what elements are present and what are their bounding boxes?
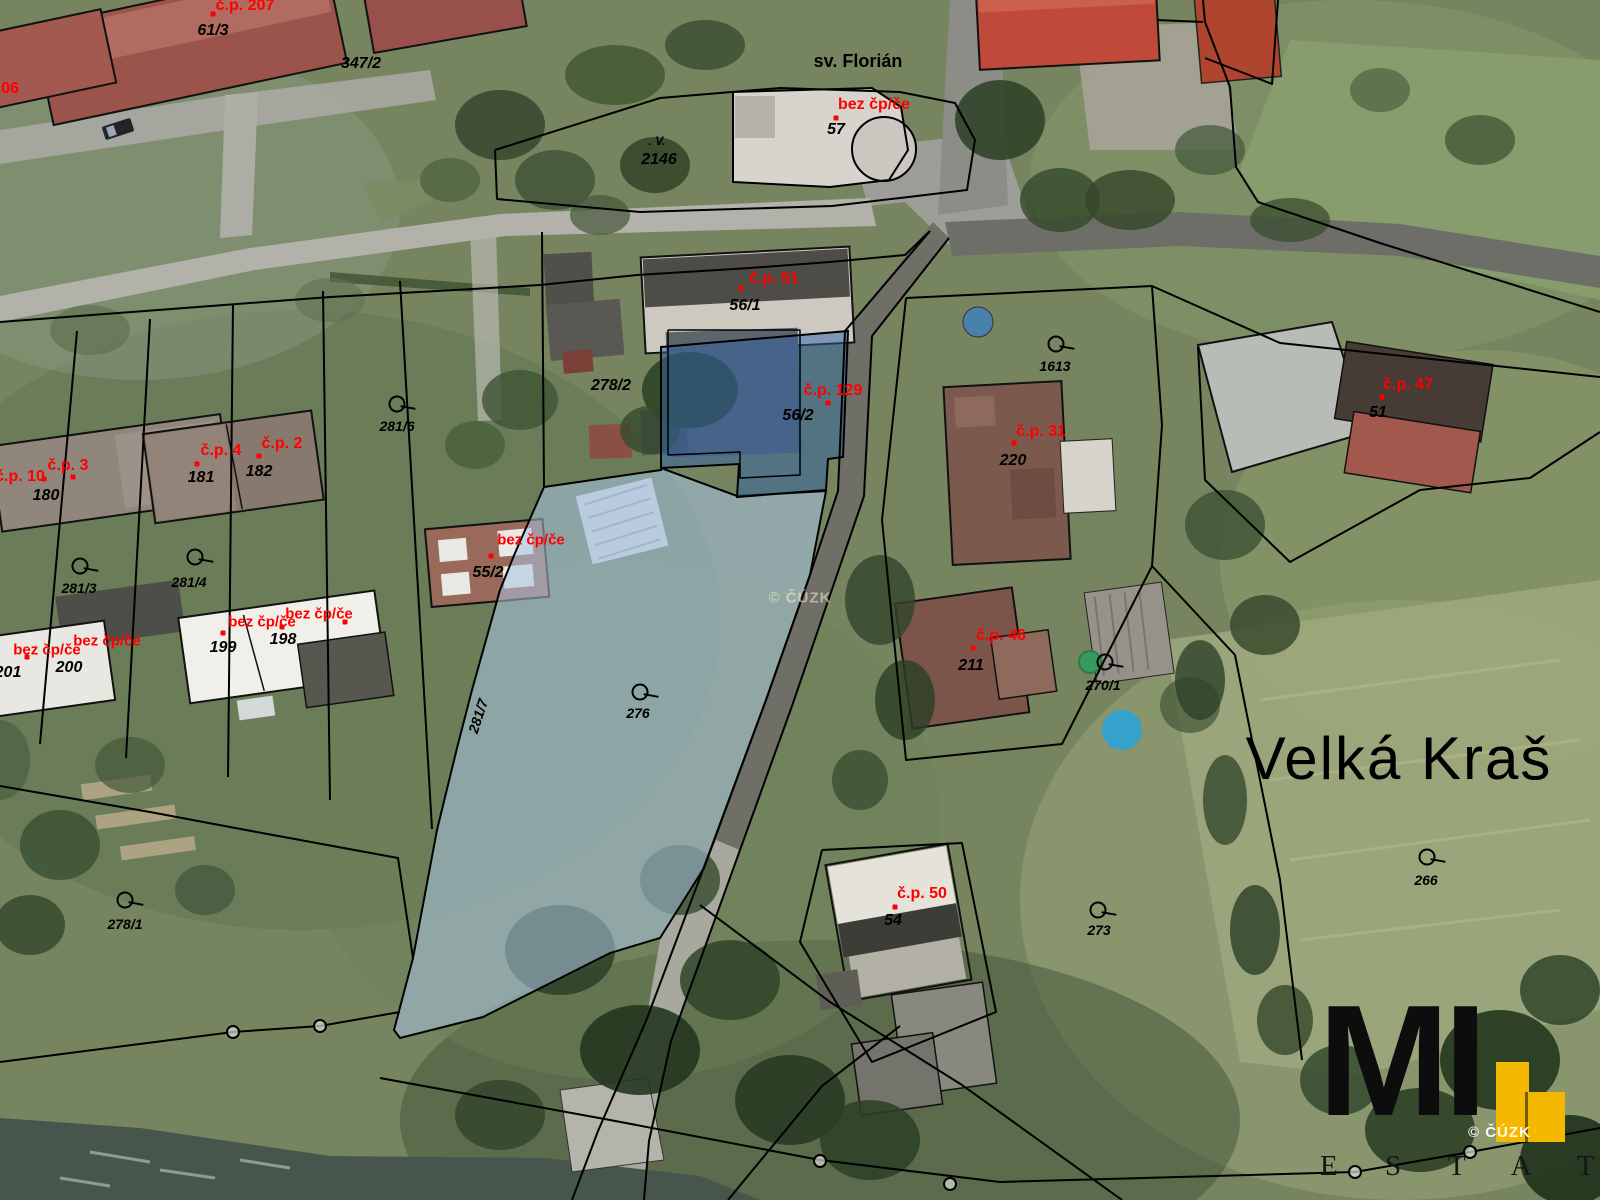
- definition-point: [1012, 441, 1017, 446]
- parcel-number-label: 278/1: [107, 917, 142, 931]
- parcel-number-label: 180: [33, 488, 60, 504]
- definition-point: [221, 631, 226, 636]
- parcel-number-label: 199: [210, 640, 237, 656]
- logo-estate-text: E S T A T E: [1320, 1150, 1600, 1183]
- house-number-label: bez čp/če: [497, 533, 565, 548]
- house-number-label: č.p. 10: [0, 469, 45, 485]
- house-number-label: č.p. 47: [1383, 377, 1433, 393]
- parcel-number-label: 198: [270, 632, 297, 648]
- parcel-number-label: 181: [188, 470, 215, 486]
- parcel-number-label: 61/3: [197, 23, 228, 39]
- parcel-number-label: 51: [1369, 405, 1387, 421]
- definition-point: [257, 454, 262, 459]
- no-number-symbol: [1097, 654, 1114, 671]
- town-name-label: Velká Kraš: [1246, 729, 1553, 789]
- house-number-label: č.p. 31: [1016, 424, 1066, 440]
- definition-point: [211, 12, 216, 17]
- parcel-number-label: 211: [958, 658, 984, 674]
- house-number-label: č.p. 2: [262, 436, 303, 452]
- logo-mi-text: MI: [1318, 982, 1482, 1140]
- no-number-symbol: [1419, 849, 1436, 866]
- parcel-number-label: 182: [246, 464, 273, 480]
- house-number-label: č.p. 129: [804, 383, 863, 399]
- definition-point: [826, 401, 831, 406]
- parcel-number-label: 281/3: [61, 581, 96, 595]
- definition-point: [739, 286, 744, 291]
- no-number-symbol: [117, 892, 134, 909]
- house-number-label: 06: [1, 81, 19, 97]
- mi-estate-logo: MI E S T A T E: [1318, 1012, 1578, 1192]
- house-number-label: č.p. 50: [897, 886, 947, 902]
- parcel-number-label: 270/1: [1085, 678, 1120, 692]
- house-number-label: bez čp/če: [838, 97, 910, 113]
- definition-point: [1380, 395, 1385, 400]
- house-number-label: č.p. 4: [201, 443, 242, 459]
- parcel-number-label: 278/2: [591, 378, 631, 394]
- no-number-symbol: [187, 549, 204, 566]
- parcel-number-label: 201: [0, 665, 21, 681]
- church-name-label: sv. Florián: [814, 52, 903, 70]
- definition-point: [71, 475, 76, 480]
- definition-point: [195, 462, 200, 467]
- definition-point: [489, 554, 494, 559]
- parcel-number-label: 273: [1087, 923, 1110, 937]
- parcel-number-label: 281/6: [379, 419, 414, 433]
- house-number-label: bez čp/če: [13, 643, 81, 658]
- cadastral-map-view[interactable]: 61/3347/2. V.21465756/1278/256/2281/6180…: [0, 0, 1600, 1200]
- house-number-label: č.p. 207: [216, 0, 275, 14]
- cuzk-watermark-logo: © ČÚZK: [1468, 1124, 1531, 1141]
- parcel-number-label: 220: [1000, 453, 1027, 469]
- house-number-label: č.p. 51: [749, 271, 799, 287]
- house-number-label: č.p. 3: [48, 458, 89, 474]
- parcel-number-label: 55/2: [472, 565, 503, 581]
- parcel-number-label: 54: [884, 913, 902, 929]
- parcel-number-label: 1613: [1039, 359, 1070, 373]
- house-number-label: bez čp/če: [73, 634, 141, 649]
- definition-point: [25, 655, 30, 660]
- parcel-number-label: 2146: [641, 152, 677, 168]
- definition-point: [42, 477, 47, 482]
- parcel-number-label: 57: [827, 122, 845, 138]
- cuzk-watermark-center: © ČÚZK: [769, 590, 832, 607]
- logo-yellow-block-short: [1525, 1092, 1565, 1142]
- parcel-number-label: 56/2: [782, 408, 813, 424]
- parcel-number-label: 347/2: [341, 56, 381, 72]
- no-number-symbol: [1048, 336, 1065, 353]
- parcel-number-label: 281/4: [171, 575, 206, 589]
- definition-point: [280, 625, 285, 630]
- definition-point: [343, 620, 348, 625]
- no-number-symbol: [389, 396, 406, 413]
- parcel-number-label: 266: [1414, 873, 1437, 887]
- definition-point: [834, 116, 839, 121]
- parcel-number-label: 200: [56, 660, 83, 676]
- no-number-symbol: [72, 558, 89, 575]
- no-number-symbol: [1090, 902, 1107, 919]
- parcel-number-label: . V.: [649, 135, 666, 147]
- parcel-number-label: 56/1: [729, 298, 760, 314]
- parcel-number-label: 276: [626, 706, 649, 720]
- definition-point: [971, 646, 976, 651]
- no-number-symbol: [632, 684, 649, 701]
- definition-point: [893, 905, 898, 910]
- house-number-label: č.p. 46: [976, 628, 1026, 644]
